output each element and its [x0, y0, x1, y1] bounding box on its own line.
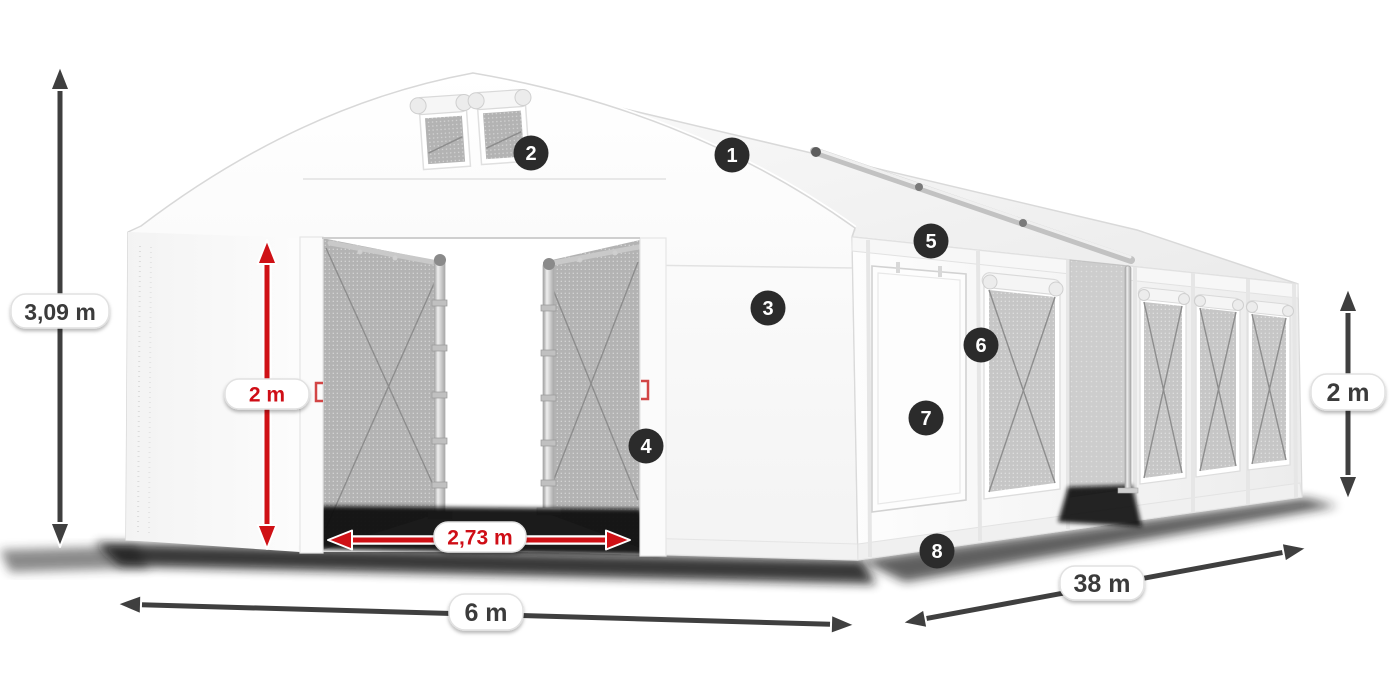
svg-text:5: 5 [925, 231, 936, 253]
badge-3[interactable]: 3 [751, 291, 786, 326]
svg-text:4: 4 [640, 436, 652, 458]
dim-door-width-value: 2,73 m [447, 527, 512, 550]
dim-side-height: 2 m [1311, 288, 1385, 500]
door-hook [896, 262, 900, 273]
svg-text:7: 7 [920, 408, 931, 430]
arrowhead-left [900, 609, 927, 632]
svg-text:1: 1 [726, 145, 737, 167]
side-window-3 [1194, 294, 1244, 477]
arrowhead-down [51, 523, 70, 547]
badge-7[interactable]: 7 [909, 401, 944, 436]
badge-2[interactable]: 2 [514, 136, 549, 171]
svg-text:6: 6 [975, 335, 986, 357]
connector-pole-base [1118, 488, 1138, 493]
side-window-2 [1138, 287, 1190, 484]
svg-text:8: 8 [931, 541, 942, 563]
dim-total-height-value: 3,09 m [24, 299, 96, 325]
badge-1[interactable]: 1 [715, 138, 750, 173]
dim-side-height-label: 2 m [1311, 374, 1385, 410]
dim-side-height-value: 2 m [1326, 379, 1369, 407]
interior-mesh-right [543, 240, 640, 548]
side-entrance-door [872, 262, 966, 512]
arrowhead-up [1339, 288, 1358, 312]
svg-text:2: 2 [525, 143, 536, 165]
side-window-1 [981, 272, 1063, 499]
connector-pole [1125, 266, 1131, 491]
svg-text:3: 3 [762, 298, 773, 320]
dim-door-height-value: 2 m [249, 384, 285, 407]
door-pillar-right [640, 238, 666, 556]
module-connector-panel [1058, 260, 1142, 527]
arrowhead-up [51, 66, 70, 90]
arrowhead-right [1282, 539, 1309, 562]
dim-total-height-label: 3,09 m [11, 294, 109, 328]
side-window-4 [1246, 300, 1294, 470]
tent-illustration [126, 73, 1302, 560]
arrowhead-down [1339, 476, 1358, 500]
dim-width-label: 6 m [449, 594, 523, 630]
dim-door-width-label: 2,73 m [434, 522, 526, 552]
interior-mesh-left [322, 238, 443, 550]
badge-5[interactable]: 5 [914, 224, 949, 259]
badge-8[interactable]: 8 [920, 534, 955, 569]
door-hook [938, 266, 942, 277]
dim-width-value: 6 m [464, 599, 507, 627]
dim-width: 6 m [117, 594, 856, 634]
tent-diagram: 3,09 m 2 m 2,73 m [0, 0, 1400, 700]
dim-door-height-label: 2 m [225, 379, 309, 409]
badge-6[interactable]: 6 [964, 328, 999, 363]
arrowhead-left [117, 595, 142, 615]
dim-length-label: 38 m [1060, 566, 1144, 600]
vent-mesh [425, 116, 465, 164]
arrowhead-right [831, 615, 856, 635]
dim-total-height: 3,09 m [11, 66, 109, 547]
front-opening [302, 238, 661, 555]
badge-4[interactable]: 4 [629, 429, 664, 464]
dim-length-value: 38 m [1074, 570, 1131, 598]
